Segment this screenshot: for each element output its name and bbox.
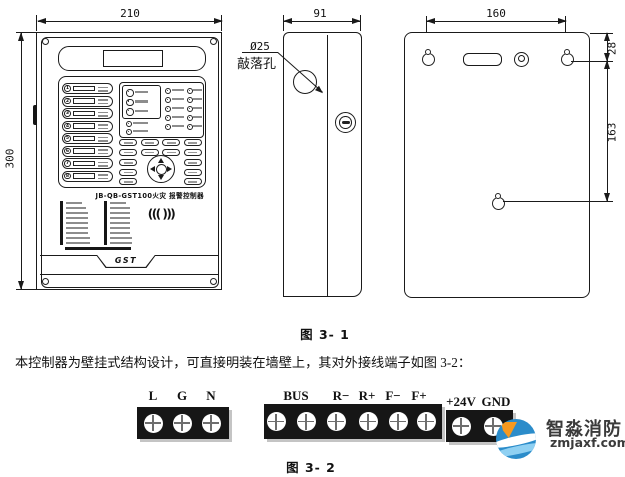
zone-number: 4 [64, 123, 71, 130]
figure-caption-3-1: 图 3- 1 [280, 324, 370, 343]
front-view: 1 2 3 4 5 6 7 8 [36, 32, 222, 290]
function-key[interactable] [119, 139, 137, 146]
dimension-line-91 [284, 21, 360, 22]
function-key[interactable] [184, 139, 202, 146]
status-led [126, 99, 134, 107]
terminal-label-F-plus: F+ [411, 388, 426, 404]
zone-label-window [73, 86, 95, 92]
dimension-line-160 [427, 21, 566, 22]
screw-terminal[interactable] [359, 412, 378, 431]
dimension-value-300: 300 [4, 137, 17, 181]
terminal-label-L: L [149, 388, 158, 404]
dimension-value-91: 91 [300, 7, 340, 20]
zone-row[interactable]: 3 [62, 108, 113, 119]
terminal-label-F-minus: F− [385, 388, 400, 404]
zone-number: 2 [64, 98, 71, 105]
arrow-down-icon[interactable] [158, 175, 164, 180]
status-led [165, 115, 171, 121]
control-panel: 1 2 3 4 5 6 7 8 [58, 76, 206, 188]
main-alarm-led-box [122, 85, 161, 119]
zone-row[interactable]: 4 [62, 121, 113, 132]
dimension-value-28: 28 [606, 35, 619, 63]
zone-number: 8 [64, 173, 71, 180]
zone-number: 3 [64, 110, 71, 117]
status-led [165, 88, 171, 94]
function-key[interactable] [184, 169, 202, 176]
round-hole [514, 52, 529, 67]
corner-screw-icon [210, 38, 217, 45]
lcd-window [103, 50, 163, 68]
terminal-label-N: N [206, 388, 215, 404]
status-led [165, 124, 171, 130]
screw-terminal[interactable] [267, 412, 286, 431]
display-bezel [58, 46, 206, 71]
zone-label-window [73, 123, 95, 129]
zone-number: 5 [64, 135, 71, 142]
zone-label-window [73, 148, 95, 154]
led-strip [104, 201, 107, 245]
door-hinge-tab [33, 105, 37, 125]
model-label: JB-QB-GST100火灾 报警控制器 [58, 190, 204, 200]
nav-pad[interactable] [147, 155, 175, 183]
door-edge-line [327, 35, 328, 296]
dimension-value-160: 160 [472, 7, 520, 20]
screw-terminal[interactable] [173, 414, 192, 433]
zone-number: 7 [64, 160, 71, 167]
zone-row[interactable]: 7 [62, 158, 113, 169]
panel-seam-line [40, 274, 219, 275]
zone-button-column: 1 2 3 4 5 6 7 8 [62, 83, 114, 183]
status-led [165, 97, 171, 103]
terminal-label-GND: GND [482, 394, 511, 410]
terminal-label-G: G [177, 388, 187, 404]
keyhole-mount-slot [561, 53, 574, 66]
function-key[interactable] [119, 159, 137, 166]
function-key[interactable] [141, 149, 159, 156]
corner-screw-icon [42, 38, 49, 45]
terminal-label-24V: +24V [446, 394, 476, 410]
led-indicator-panel [119, 82, 204, 138]
zone-row[interactable]: 8 [62, 171, 113, 182]
function-key[interactable] [162, 139, 180, 146]
function-key[interactable] [184, 149, 202, 156]
function-key[interactable] [141, 139, 159, 146]
function-key[interactable] [119, 178, 137, 185]
zone-row[interactable]: 5 [62, 133, 113, 144]
keypad [119, 139, 202, 184]
keyhole-mount-slot [492, 197, 505, 210]
brand-logo-plate: GST [96, 255, 156, 268]
dimension-line-210 [38, 21, 222, 22]
side-view [283, 32, 362, 297]
zone-row[interactable]: 6 [62, 146, 113, 157]
function-key[interactable] [162, 149, 180, 156]
screw-terminal[interactable] [389, 412, 408, 431]
dimension-line-300 [21, 33, 22, 289]
terminal-label-R-minus: R− [333, 388, 350, 404]
function-key[interactable] [184, 159, 202, 166]
knockout-text-label: 敲落孔 [237, 53, 276, 72]
watermark-site: zmjaxf.com [550, 435, 625, 450]
zone-label-window [73, 98, 95, 104]
knockout-hole [293, 70, 317, 94]
back-view [404, 32, 590, 298]
screw-terminal[interactable] [417, 412, 436, 431]
screw-terminal[interactable] [327, 412, 346, 431]
corner-screw-icon [42, 278, 49, 285]
dimension-value-210: 210 [110, 7, 150, 20]
screw-terminal[interactable] [297, 412, 316, 431]
function-key[interactable] [184, 178, 202, 185]
legend-underline [65, 247, 131, 250]
body-text: 本控制器为壁挂式结构设计，可直接明装在墙壁上，其对外接线端子如图 3-2： [15, 354, 471, 372]
power-terminal-block [137, 407, 229, 439]
zone-label-window [73, 173, 95, 179]
zone-label-window [73, 136, 95, 142]
watermark-logo [496, 419, 536, 459]
lock-icon [335, 112, 356, 133]
arrow-up-icon[interactable] [158, 158, 164, 163]
led-strip [60, 201, 63, 245]
zone-label-window [73, 161, 95, 167]
zone-row[interactable]: 2 [62, 96, 113, 107]
manual-page: 210 300 1 2 3 4 5 6 7 8 [0, 0, 625, 477]
zone-number: 1 [64, 85, 71, 92]
wire-entry-slot [463, 53, 502, 66]
zone-label-window [73, 111, 95, 117]
speaker-icon: ((( ))) [142, 207, 180, 221]
screw-terminal[interactable] [144, 414, 163, 433]
corner-screw-icon [210, 278, 217, 285]
screw-terminal[interactable] [202, 414, 221, 433]
led-legend-column [60, 201, 97, 245]
status-led [165, 106, 171, 112]
function-key[interactable] [119, 169, 137, 176]
status-led [126, 108, 134, 116]
terminal-label-BUS: BUS [283, 388, 308, 404]
status-led [126, 121, 132, 127]
status-led [126, 129, 132, 135]
terminal-label-R-plus: R+ [359, 388, 376, 404]
screw-terminal[interactable] [452, 417, 471, 436]
reference-line [503, 201, 613, 202]
function-key[interactable] [119, 149, 137, 156]
arrow-right-icon[interactable] [167, 166, 172, 172]
led-legend-column [104, 201, 137, 245]
keyhole-mount-slot [422, 53, 435, 66]
arrow-left-icon[interactable] [150, 166, 155, 172]
dimension-value-163: 163 [606, 115, 619, 151]
zone-number: 6 [64, 148, 71, 155]
figure-caption-3-2: 图 3- 2 [266, 457, 356, 476]
ok-key[interactable] [156, 164, 167, 175]
signal-terminal-block [264, 404, 442, 439]
brand-logo: GST [96, 256, 156, 265]
leader-line [242, 52, 278, 53]
status-led [126, 89, 134, 97]
zone-row[interactable]: 1 [62, 83, 113, 94]
